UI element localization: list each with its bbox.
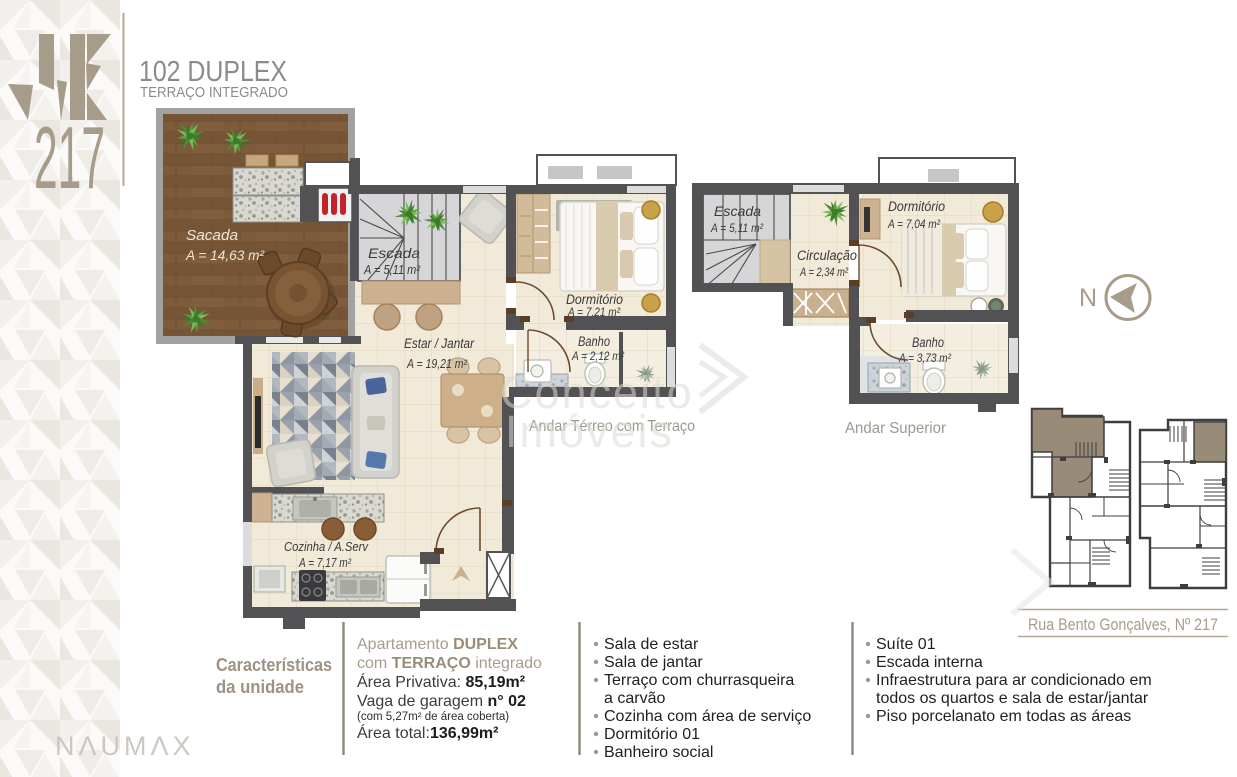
svg-text:Rua Bento Gonçalves, Nº 217: Rua Bento Gonçalves, Nº 217 [1028, 616, 1218, 634]
svg-text:Características: Características [216, 654, 332, 675]
svg-text:Escada interna: Escada interna [876, 654, 983, 671]
svg-text:Infraestrutura para ar condici: Infraestrutura para ar condicionado em [876, 672, 1152, 689]
svg-text:Imóveis: Imóveis [505, 406, 674, 457]
svg-text:Piso porcelanato em todas as á: Piso porcelanato em todas as áreas [876, 708, 1131, 725]
svg-text:Cozinha com área de serviço: Cozinha com área de serviço [604, 708, 811, 725]
svg-text:Sala de jantar: Sala de jantar [604, 654, 703, 671]
svg-text:Área Privativa: 85,19m²: Área Privativa: 85,19m² [357, 672, 525, 691]
svg-text:A = 5,11 m²: A = 5,11 m² [363, 263, 421, 277]
svg-text:Escada: Escada [368, 245, 420, 261]
svg-text:Circulação: Circulação [797, 248, 857, 263]
svg-text:todos os quartos e sala de est: todos os quartos e sala de estar/jantar [876, 690, 1149, 707]
svg-text:Banho: Banho [578, 334, 610, 349]
svg-text:A = 19,21 m²: A = 19,21 m² [406, 357, 468, 371]
svg-text:com TERRAÇO integrado: com TERRAÇO integrado [357, 655, 542, 672]
svg-text:Área total:136,99m²: Área total:136,99m² [357, 723, 498, 742]
svg-text:Banho: Banho [912, 335, 944, 350]
svg-text:A = 7,17 m²: A = 7,17 m² [298, 556, 351, 570]
svg-text:Dormitório: Dormitório [888, 199, 945, 214]
svg-text:A = 2,12 m²: A = 2,12 m² [571, 349, 625, 363]
svg-text:Suíte 01: Suíte 01 [876, 636, 936, 653]
svg-text:Apartamento DUPLEX: Apartamento DUPLEX [357, 636, 518, 653]
svg-text:217: 217 [34, 108, 105, 207]
svg-text:Dormitório 01: Dormitório 01 [604, 726, 700, 743]
svg-text:A = 5,11 m²: A = 5,11 m² [710, 221, 764, 235]
svg-text:Estar / Jantar: Estar / Jantar [404, 336, 474, 351]
svg-text:a carvão: a carvão [604, 690, 665, 707]
svg-text:Cozinha / A.Serv: Cozinha / A.Serv [284, 539, 369, 554]
svg-text:Terraço com churrasqueira: Terraço com churrasqueira [604, 672, 794, 689]
svg-text:N: N [1079, 284, 1097, 312]
svg-text:(com 5,27m² de área coberta): (com 5,27m² de área coberta) [357, 711, 509, 723]
svg-text:Escada: Escada [714, 204, 762, 219]
svg-text:A = 7,04 m²: A = 7,04 m² [887, 217, 941, 231]
svg-text:A = 3,73 m²: A = 3,73 m² [898, 351, 952, 365]
svg-text:Sala de estar: Sala de estar [604, 636, 699, 653]
svg-text:Sacada: Sacada [186, 227, 238, 244]
svg-text:Andar Superior: Andar Superior [845, 420, 947, 437]
svg-text:A = 2,34 m²: A = 2,34 m² [799, 265, 849, 279]
svg-text:NΛUMΛX: NΛUMΛX [55, 731, 195, 761]
svg-text:TERRAÇO INTEGRADO: TERRAÇO INTEGRADO [140, 84, 288, 101]
svg-text:A = 14,63 m²: A = 14,63 m² [185, 248, 265, 263]
svg-text:Vaga de garagem n° 02: Vaga de garagem n° 02 [357, 693, 526, 710]
svg-text:da unidade: da unidade [216, 676, 304, 697]
svg-text:Banheiro social: Banheiro social [604, 744, 713, 761]
